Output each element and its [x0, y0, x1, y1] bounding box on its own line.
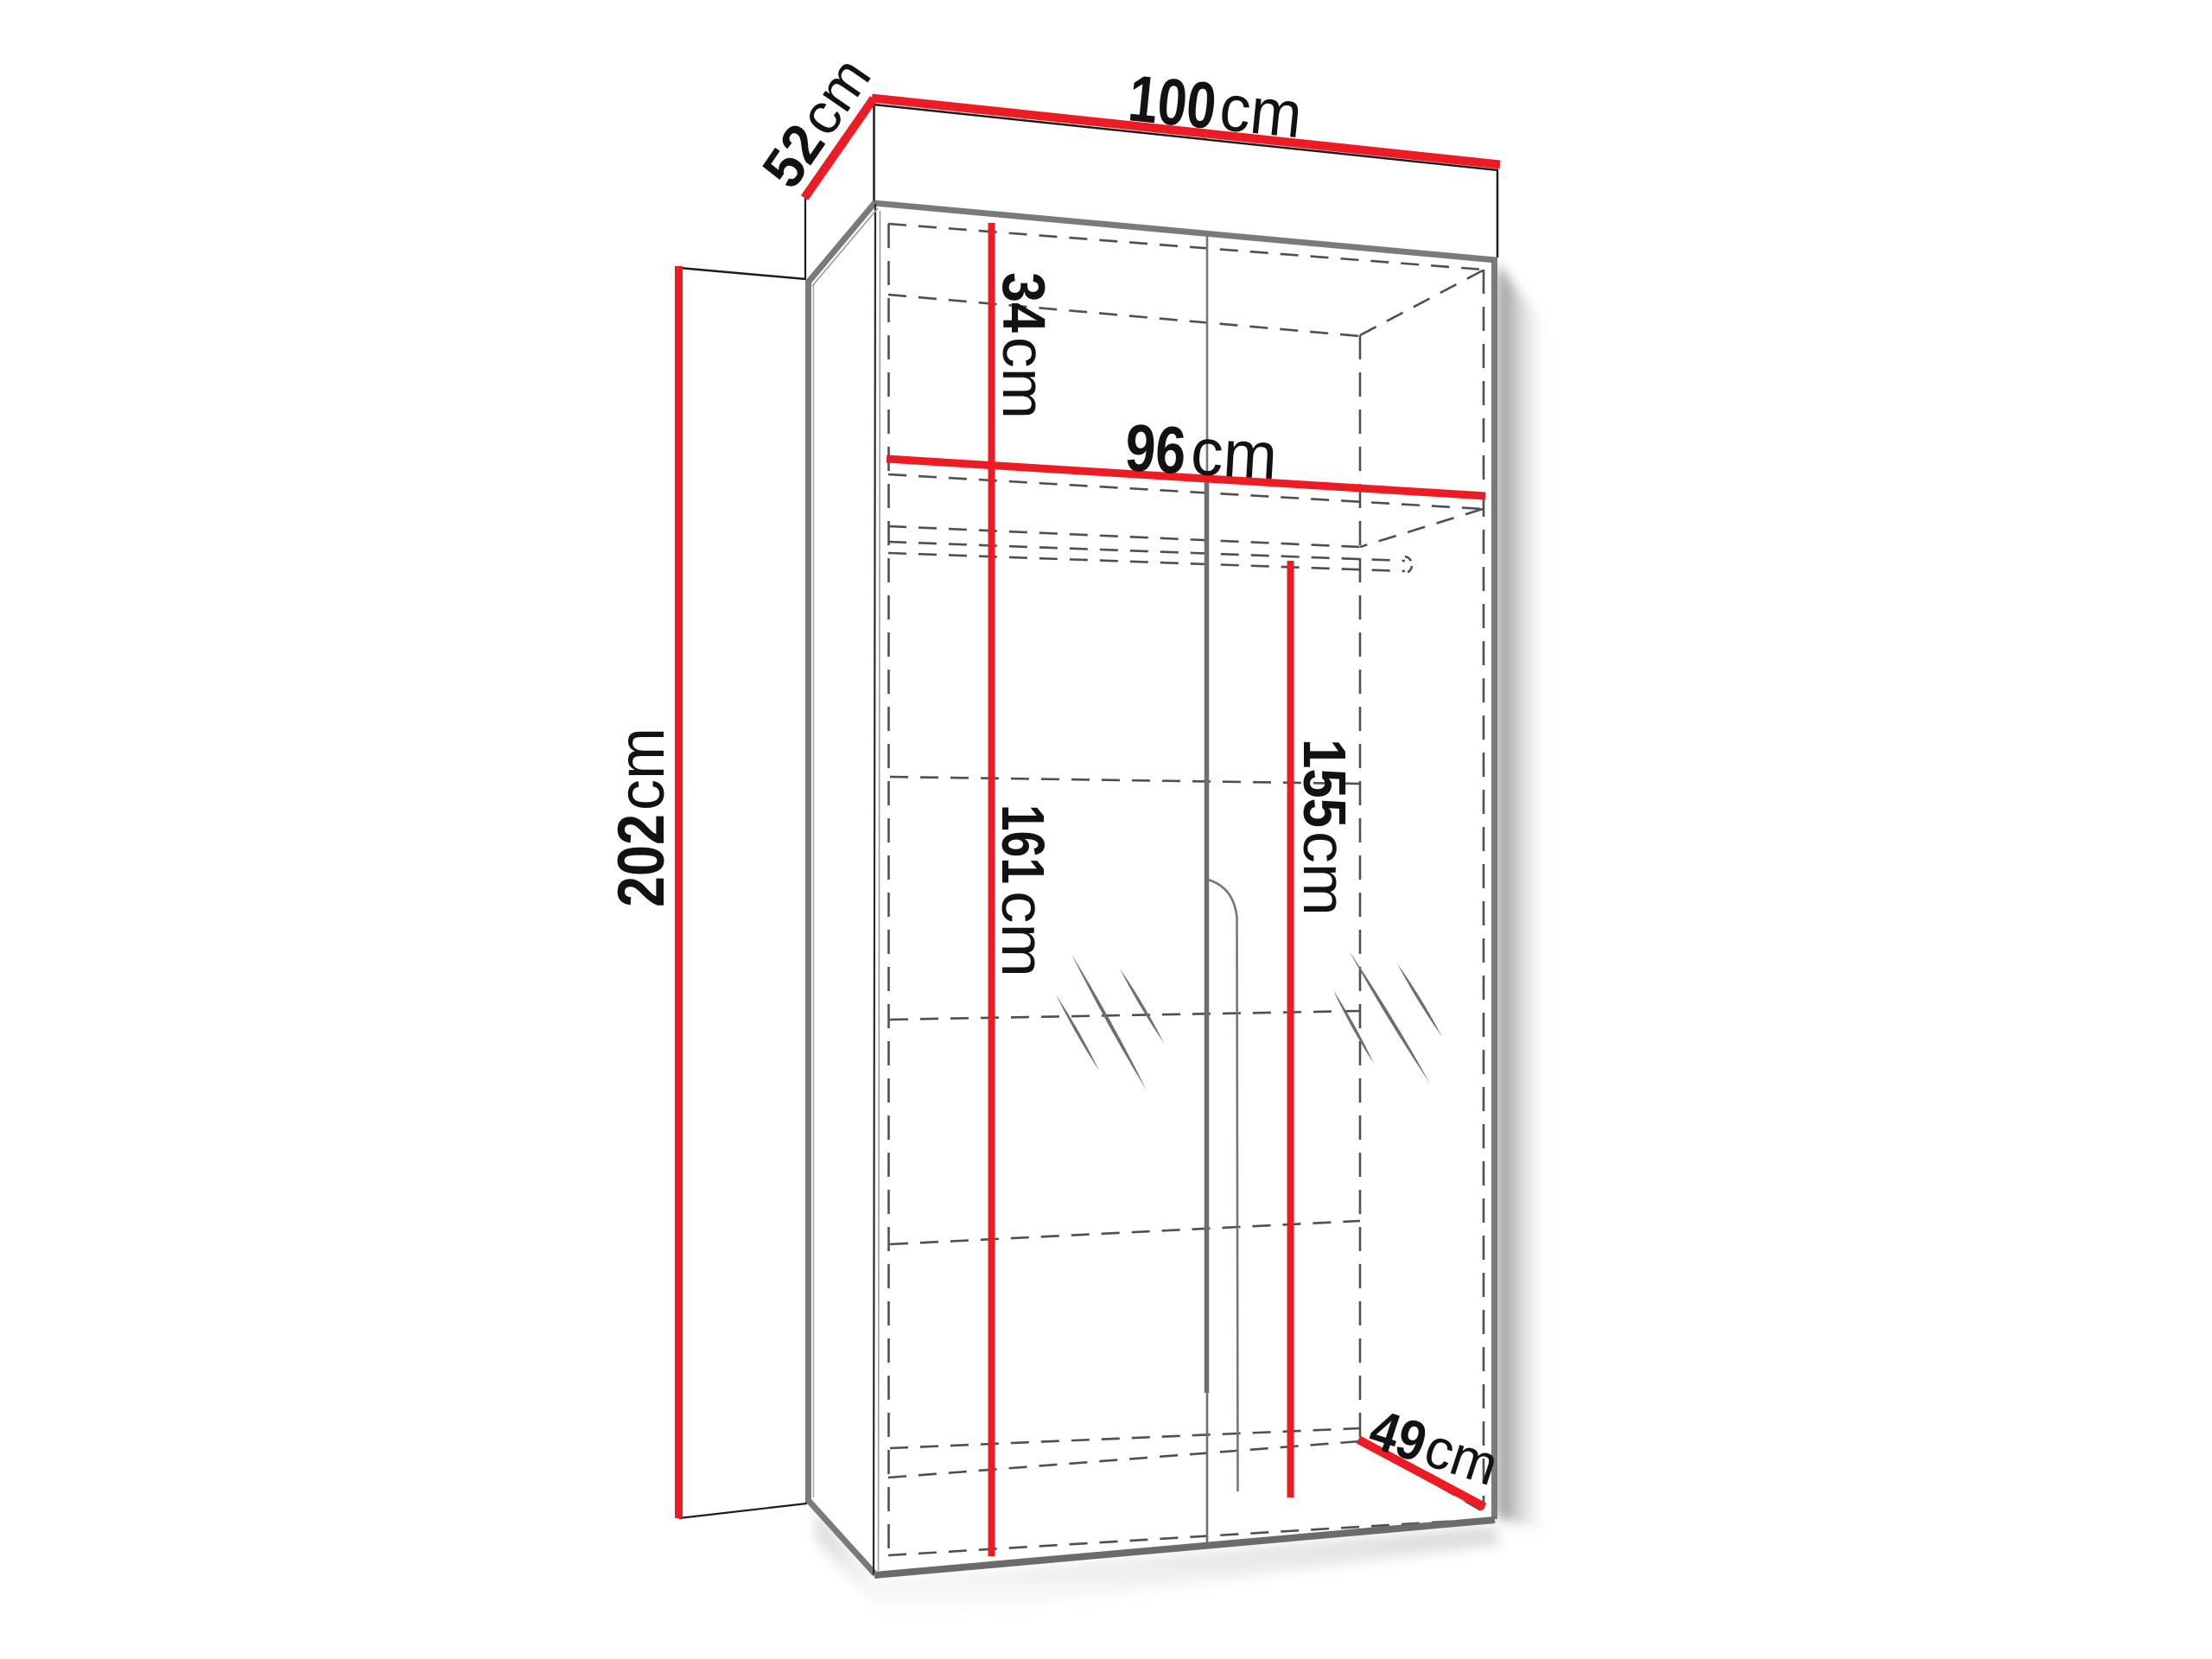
svg-text:161cm: 161cm	[989, 804, 1057, 977]
svg-text:96cm: 96cm	[1123, 410, 1280, 493]
svg-text:34cm: 34cm	[990, 272, 1058, 419]
svg-text:202cm: 202cm	[605, 728, 678, 907]
svg-text:155cm: 155cm	[1291, 739, 1358, 916]
